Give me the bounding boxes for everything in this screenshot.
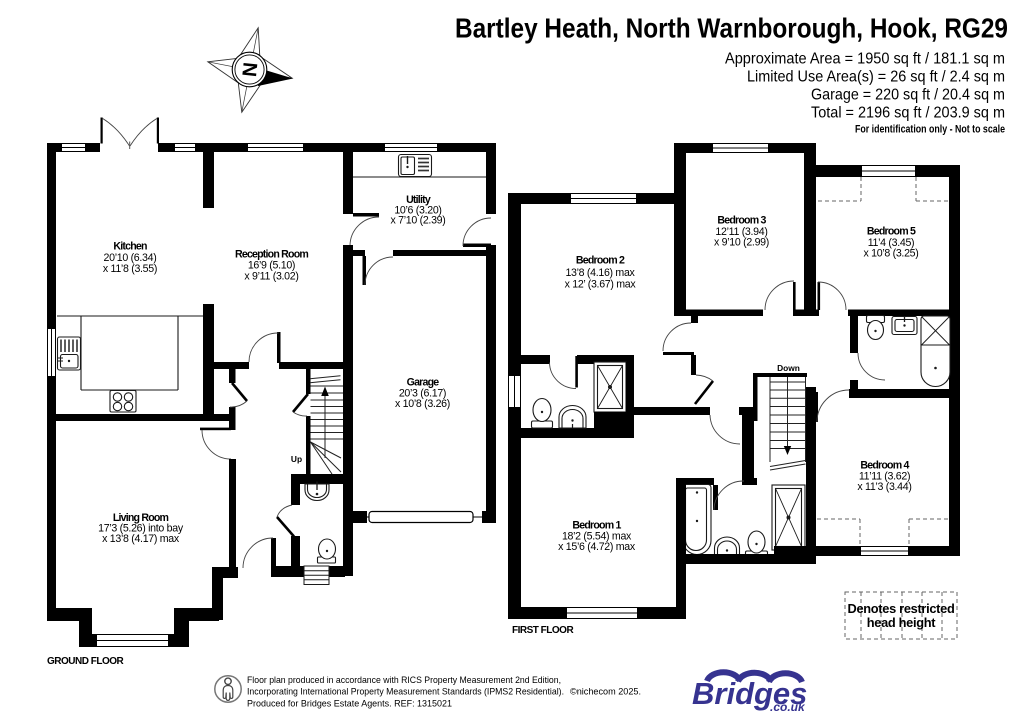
svg-text:x 13’8 (4.17) max: x 13’8 (4.17) max: [102, 533, 180, 545]
svg-text:Approximate Area = 1950 sq ft: Approximate Area = 1950 sq ft / 181.1 sq…: [725, 51, 1005, 68]
svg-text:13’8 (4.16) max: 13’8 (4.16) max: [565, 267, 635, 279]
svg-text:x 11’3 (3.44): x 11’3 (3.44): [857, 481, 911, 493]
svg-text:x 9’10 (2.99): x 9’10 (2.99): [714, 237, 769, 249]
svg-text:Bedroom 5: Bedroom 5: [867, 226, 916, 238]
svg-text:Kitchen: Kitchen: [113, 241, 147, 253]
svg-text:Bartley Heath, North Warnborou: Bartley Heath, North Warnborough, Hook, …: [455, 12, 1008, 43]
svg-text:Up: Up: [291, 454, 302, 464]
svg-text:.co.uk: .co.uk: [770, 700, 806, 714]
svg-text:N: N: [237, 61, 260, 78]
svg-text:Down: Down: [777, 363, 800, 373]
svg-text:©nichecom 2025.: ©nichecom 2025.: [570, 687, 641, 697]
svg-text:Bedroom 2: Bedroom 2: [576, 255, 625, 267]
svg-text:Produced for Bridges Estate Ag: Produced for Bridges Estate Agents. REF:…: [247, 698, 452, 708]
svg-text:Total = 2196 sq ft / 203.9 sq: Total = 2196 sq ft / 203.9 sq m: [811, 105, 1005, 122]
svg-text:Incorporating International Pr: Incorporating International Property Mea…: [247, 687, 564, 697]
svg-text:Denotes restricted: Denotes restricted: [848, 601, 955, 616]
svg-text:Limited Use Area(s) = 26 sq ft: Limited Use Area(s) = 26 sq ft / 2.4 sq …: [747, 69, 1005, 86]
svg-text:FIRST FLOOR: FIRST FLOOR: [512, 625, 574, 636]
svg-text:16’9 (5.10): 16’9 (5.10): [248, 259, 295, 271]
svg-text:head height: head height: [867, 615, 937, 630]
svg-text:x 7’10 (2.39): x 7’10 (2.39): [391, 215, 446, 227]
svg-text:For identification only - Not: For identification only - Not to scale: [855, 123, 1005, 135]
svg-text:x 11’8 (3.55): x 11’8 (3.55): [103, 263, 157, 275]
svg-text:GROUND FLOOR: GROUND FLOOR: [47, 656, 124, 667]
svg-text:x 10’8 (3.26): x 10’8 (3.26): [395, 398, 450, 410]
svg-text:Garage = 220 sq ft / 20.4 sq m: Garage = 220 sq ft / 20.4 sq m: [811, 87, 1005, 104]
svg-text:Bedroom 3: Bedroom 3: [717, 215, 766, 227]
svg-text:Floor plan produced in accorda: Floor plan produced in accordance with R…: [247, 675, 561, 685]
svg-text:x 15’6 (4.72) max: x 15’6 (4.72) max: [558, 541, 636, 553]
svg-text:x 12’ (3.67) max: x 12’ (3.67) max: [565, 279, 637, 291]
svg-text:20’10 (6.34): 20’10 (6.34): [104, 252, 157, 264]
svg-text:x 10’8 (3.25): x 10’8 (3.25): [864, 248, 919, 260]
svg-text:x 9’11 (3.02): x 9’11 (3.02): [244, 271, 298, 283]
